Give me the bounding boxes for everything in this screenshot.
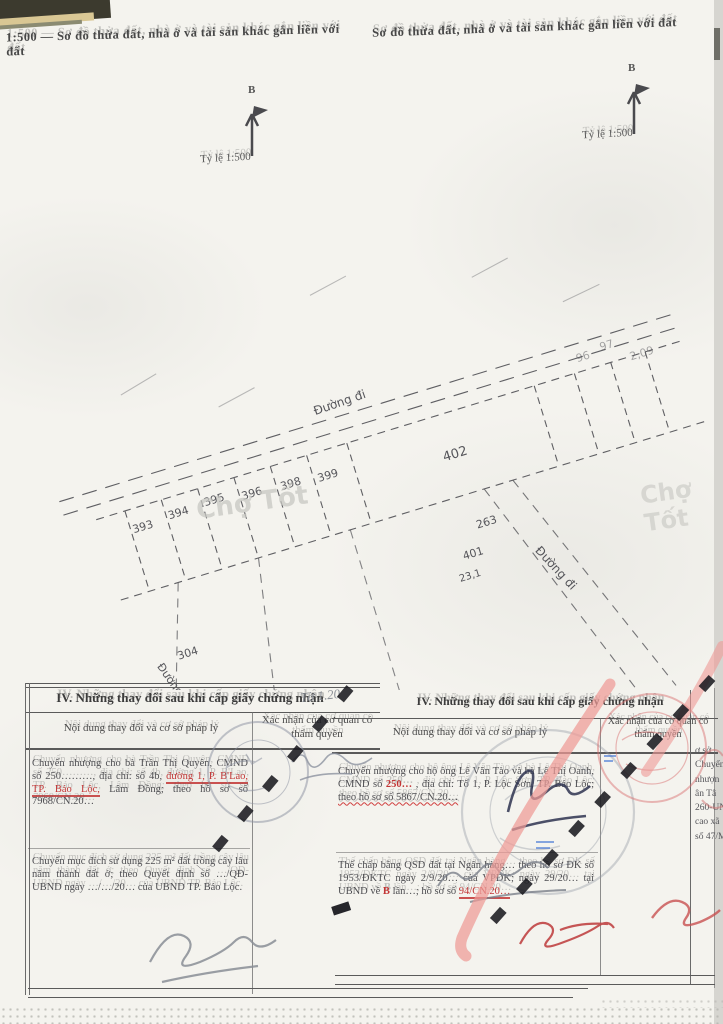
ghost-97: 97: [598, 337, 615, 354]
lt-row-divider: [28, 848, 250, 849]
parcel-401: 401: [461, 544, 485, 563]
edge-fragment: số 47/M: [695, 830, 723, 844]
dim-231: 23,1: [458, 568, 483, 585]
rt-row2: Thế chấp bằng QSD đất tại Ngân hàng… the…: [338, 860, 594, 898]
ghost-96: 96: [574, 349, 591, 366]
scan-halftone-strip: [0, 1006, 723, 1024]
rt-bottom-border: [335, 975, 715, 976]
edge-fragment: nhượn: [695, 773, 723, 787]
lt-row1: Chuyển nhượng cho bà Trần Thị Quyên, CMN…: [32, 758, 248, 809]
rt-row2-red: B: [383, 886, 390, 897]
rt-row2-text-b: lần…; hồ sơ số: [393, 886, 457, 897]
parcel-393: 393: [131, 518, 155, 537]
parcel-304: 304: [176, 644, 200, 663]
rt-col-divider: [600, 718, 601, 976]
lt-title-underline: [25, 712, 380, 713]
road-label-top: Đường đi: [312, 387, 368, 418]
red-scribble-right: [652, 901, 720, 925]
lt-bottom-border2: [28, 997, 573, 998]
rt-col-content-header: Nội dung thay đổi và cơ sở pháp lý: [350, 726, 590, 740]
north-letter: B: [248, 84, 255, 96]
lt-left-border: [25, 683, 26, 995]
watermark-right: Chợ Tốt: [638, 471, 723, 538]
lt-col-content-header: Nội dung thay đổi và cơ sở pháp lý: [38, 722, 244, 736]
north-letter: B: [628, 62, 635, 74]
parcel-394: 394: [166, 504, 190, 523]
rt-row2-red2: 94/CN.20…: [459, 886, 511, 899]
cadastral-map: 393 394 395 396 398 399 402 263 401 23,1…: [0, 150, 723, 690]
road-label-mid: Đường đi: [532, 543, 579, 592]
pink-marker-stroke-1: [461, 684, 610, 956]
edge-fragments: ơ sở Chuyển nhượn ân Tâ 260-UN cao xã số…: [695, 744, 723, 844]
rt-header-underline: [332, 752, 718, 754]
rt-row1: Chuyển nhượng cho hộ ông Lê Văn Tào và b…: [338, 766, 594, 804]
parcel-263: 263: [475, 513, 499, 532]
lt-left-border2: [29, 683, 30, 995]
right-section-title: IV. Những thay đổi sau khi cấp giấy chứn…: [380, 694, 700, 709]
edge-fragment: 260-UN: [695, 801, 723, 815]
scan-halftone-strip2: [600, 998, 723, 1008]
header-right: Sơ đồ thửa đất, nhà ở và tài sản khác gắ…: [372, 14, 702, 40]
rt-col-confirm-header: Xác nhận của cơ quan có thẩm quyền: [604, 716, 712, 741]
header-left: 1:500 — Sơ đồ thửa đất, nhà ở và tài sản…: [6, 22, 347, 60]
road-label-left: Đường: [154, 661, 185, 690]
dark-tick: [331, 901, 351, 915]
parcel-402: 402: [441, 444, 469, 466]
lt-col-divider: [252, 712, 253, 994]
edge-fragment: ân Tâ: [695, 787, 723, 801]
rt-row1-text-b: , địa chỉ: Tổ 1, P. Lộc Sơn, TP. Bảo Lộc…: [416, 779, 594, 790]
scan-right-smudge: [714, 28, 720, 60]
lt-row2: Chuyển mục đích sử dụng 225 m² đất trồng…: [32, 856, 248, 894]
parcel-399: 399: [316, 466, 340, 485]
rt-bottom-border2: [335, 984, 715, 985]
scanned-land-certificate-page: 1:500 — Sơ đồ thửa đất, nhà ở và tài sản…: [0, 0, 723, 1024]
left-section-title: IV. Những thay đổi sau khi cấp giấy chứn…: [40, 690, 340, 706]
edge-fragment: Chuyển: [695, 758, 723, 772]
gray-signature-bottom-left: [150, 934, 276, 982]
edge-fragment: cao xã: [695, 815, 723, 829]
lt-bottom-border: [28, 988, 588, 989]
ghost-209: 2,09: [628, 344, 655, 364]
lt-header-underline: [25, 748, 380, 750]
lt-top-border: [25, 683, 380, 684]
rt-row-divider: [336, 852, 598, 853]
rt-row1-wavy: theo hồ sơ số 5867/CN.20…: [338, 792, 458, 803]
rt-row1-red: 250…: [386, 779, 412, 790]
edge-fragment: ơ sở: [695, 744, 723, 758]
